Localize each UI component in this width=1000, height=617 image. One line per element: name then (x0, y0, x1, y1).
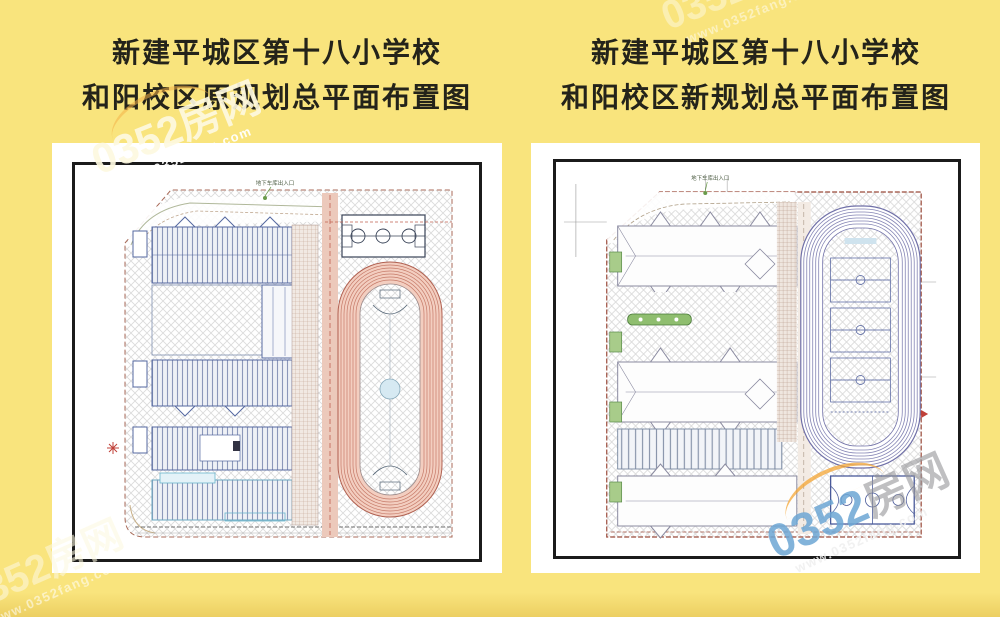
left-plan-title: 新建平城区第十八小学校 和阳校区原规划总平面布置图 (52, 30, 502, 120)
walkway-strip (292, 225, 318, 525)
left-plan-panel: 地下车库出入口 (52, 143, 502, 573)
watermark-brand-number: 0352 (0, 545, 56, 617)
walkway-strip (777, 202, 797, 442)
right-plan-title-line2: 和阳校区新规划总平面布置图 (531, 75, 981, 120)
entrance-marker (107, 442, 119, 454)
teaching-buildings (618, 212, 797, 538)
right-plan-panel: 地下车库出入口 (531, 143, 980, 573)
internal-road (322, 193, 338, 537)
right-plan-frame: 地下车库出入口 (553, 159, 961, 559)
running-track (801, 206, 920, 468)
left-plan-title-line2: 和阳校区原规划总平面布置图 (52, 75, 502, 120)
left-plan-frame: 地下车库出入口 (72, 162, 482, 562)
page: 新建平城区第十八小学校 和阳校区原规划总平面布置图 新建平城区第十八小学校 和阳… (0, 0, 1000, 617)
basketball-court (831, 476, 915, 524)
watermark-brand-name: 房网 (738, 0, 829, 5)
right-plan-top-annotation: 地下车库出入口 (691, 174, 729, 182)
left-plan-title-line1: 新建平城区第十八小学校 (52, 30, 502, 75)
right-plan-title-line1: 新建平城区第十八小学校 (531, 30, 981, 75)
left-plan-drawing: 地下车库出入口 (75, 165, 479, 559)
entrance-marker (921, 410, 928, 418)
running-track (338, 262, 442, 517)
left-plan-top-annotation: 地下车库出入口 (256, 179, 295, 187)
right-plan-title: 新建平城区第十八小学校 和阳校区新规划总平面布置图 (531, 30, 981, 120)
right-plan-drawing: 地下车库出入口 (556, 162, 958, 556)
